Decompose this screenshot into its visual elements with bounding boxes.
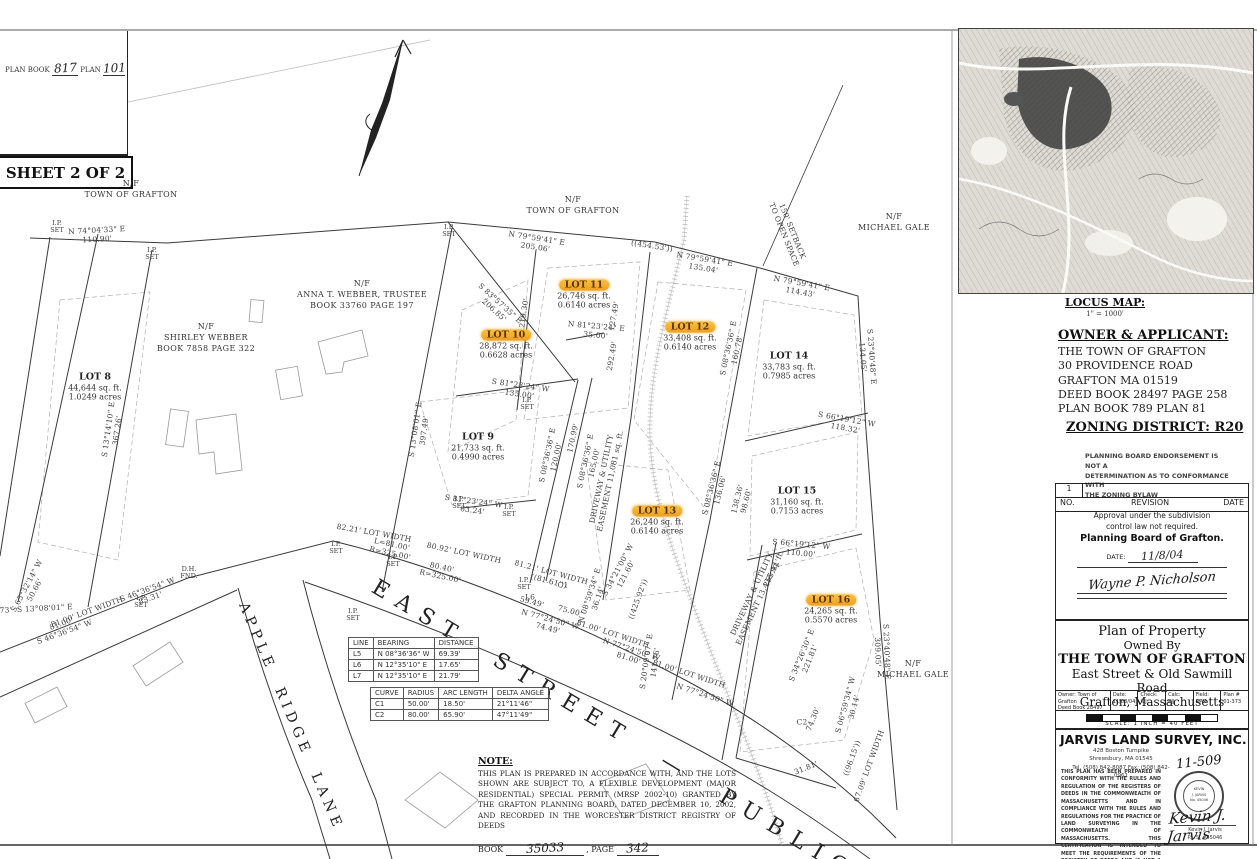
survey-plan-sheet: PLAN BOOK 817 PLAN 101 SHEET 2 OF 2 EAST…: [0, 0, 1257, 859]
abutter-label: N/F TOWN OF GRAFTON: [527, 195, 620, 217]
table-header: BEARING: [373, 638, 434, 649]
lot-label: LOT 921,733 sq. ft.0.4990 acres: [451, 425, 505, 462]
title-info-text: Field: RPM: [1196, 692, 1219, 705]
table-cell: 69.39': [434, 649, 478, 660]
lot-label: LOT 844,644 sq. ft.1.0249 acres: [68, 365, 122, 402]
monument-marker: D.H. FND.: [180, 566, 197, 580]
note-block: NOTE: THIS PLAN IS PREPARED IN ACCORDANC…: [478, 756, 736, 856]
lot-number: LOT 9: [456, 432, 500, 443]
monument-marker: I.P. SET: [145, 247, 159, 261]
lot-area-sqft: 26,746 sq. ft.: [557, 292, 611, 301]
table-header: DELTA ANGLE: [492, 688, 548, 699]
owner-applicant-block: OWNER & APPLICANT: THE TOWN OF GRAFTON 3…: [1058, 328, 1229, 416]
surveyor-signer-title: P.L.S. #45046: [1174, 835, 1236, 843]
lot-area-acres: 0.7985 acres: [762, 372, 816, 381]
monument-marker: I.P. SET: [502, 504, 516, 518]
lot-area-sqft: 33,783 sq. ft.: [762, 363, 816, 372]
monument-marker: I.P. SET: [329, 541, 343, 555]
monument-marker: I.P. SET: [517, 577, 531, 591]
table-cell: N 08°36'36" W: [373, 649, 434, 660]
title-info-cell: Owner: Town of Grafton Deed Book 28497 P…: [1056, 691, 1111, 710]
lot-label: LOT 1624,265 sq. ft.0.5570 acres: [804, 588, 858, 625]
lot-area-acres: 0.6140 acres: [630, 527, 684, 536]
title-block: Plan of Property Owned By THE TOWN OF GR…: [1055, 619, 1249, 730]
monument-marker: I.P. SET: [50, 220, 64, 234]
zoning-district: ZONING DISTRICT: R20: [1066, 420, 1243, 435]
monument-marker: I.P. SET: [520, 397, 534, 411]
plan-book-box: PLAN BOOK 817 PLAN 101: [0, 31, 128, 156]
locus-map-scale: 1" = 1000': [1040, 310, 1170, 318]
abutter-label: N/F MICHAEL GALE: [877, 659, 949, 681]
table-cell: C2: [371, 710, 404, 721]
note-book-page: BOOK 35033 , PAGE 342: [478, 841, 736, 856]
title-info-text: Check: KJJ: [1140, 692, 1163, 705]
table-row: L7N 12°35'10" E21.79': [349, 671, 479, 682]
revision-col-no: NO.: [1060, 498, 1075, 507]
approval-line-1: Approval under the subdivision: [1056, 511, 1248, 522]
dimension-label: C1: [558, 580, 569, 589]
title-info-text: Date: 11/08/04: [1113, 692, 1136, 705]
title-info-cell: Plan # 01-373: [1221, 691, 1248, 710]
lot-area-acres: 1.0249 acres: [68, 393, 122, 402]
plan-value: 101: [103, 60, 127, 75]
table-header: DISTANCE: [434, 638, 478, 649]
surveyor-name: JARVIS LAND SURVEY, INC.: [1060, 732, 1248, 747]
title-line-2: Owned By: [1056, 639, 1248, 652]
title-line-1: Plan of Property: [1056, 624, 1248, 639]
lot-number: LOT 16: [806, 595, 857, 606]
title-info-cell: Date: 11/08/04: [1111, 691, 1139, 710]
page-label: , PAGE: [586, 845, 614, 854]
lot-area-sqft: 33,408 sq. ft.: [663, 334, 717, 343]
title-info-cell: Check: KJJ: [1138, 691, 1166, 710]
abutter-label: N/F SHIRLEY WEBBER BOOK 7858 PAGE 322: [157, 322, 255, 354]
abutter-label: N/F ANNA T. WEBBER, TRUSTEE BOOK 33760 P…: [297, 279, 427, 311]
lot-label: LOT 1126,746 sq. ft.0.6140 acres: [557, 273, 611, 310]
lot-number: LOT 8: [73, 372, 117, 383]
lot-area-acres: 0.5570 acres: [804, 616, 858, 625]
monument-marker: I.P. SET: [442, 224, 456, 238]
table-row: C280.00'65.90'47°11'49": [371, 710, 549, 721]
line-table: LINEBEARINGDISTANCEL5N 08°36'36" W69.39'…: [348, 637, 479, 682]
table-cell: 18.50': [439, 699, 493, 710]
curve-table: CURVERADIUSARC LENGTHDELTA ANGLEC150.00'…: [370, 687, 549, 721]
table-cell: 50.00': [403, 699, 438, 710]
monument-marker: I.P. SET: [346, 608, 360, 622]
table-cell: 47°11'49": [492, 710, 548, 721]
lot-label: LOT 1433,783 sq. ft.0.7985 acres: [762, 344, 816, 381]
abutter-label: N/F TOWN OF GRAFTON: [85, 179, 178, 201]
owner-lines: THE TOWN OF GRAFTON 30 PROVIDENCE ROAD G…: [1058, 345, 1229, 416]
table-header: CURVE: [371, 688, 404, 699]
north-arrow-icon: [359, 40, 411, 176]
lot-label: LOT 1028,872 sq. ft.0.6628 acres: [479, 323, 533, 360]
lot-label: LOT 1233,408 sq. ft.0.6140 acres: [663, 315, 717, 352]
note-body: THIS PLAN IS PREPARED IN ACCORDANCE WITH…: [478, 769, 736, 832]
table-header: LINE: [349, 638, 374, 649]
dimension-label: N 74°04'33" E 110.90': [68, 224, 126, 246]
table-header: RADIUS: [403, 688, 438, 699]
table-row: L5N 08°36'36" W69.39': [349, 649, 479, 660]
table-cell: L7: [349, 671, 374, 682]
book-value: 35033: [525, 840, 564, 856]
scale-caption: SCALE: 1 INCH = 40 FEET: [1056, 721, 1248, 727]
lot-number: LOT 10: [481, 330, 532, 341]
dimension-label: L6: [525, 592, 535, 601]
dimension-label: S 23°40'48" E 134.05': [856, 328, 879, 385]
table-cell: 65.90': [439, 710, 493, 721]
title-info-text: Owner: Town of Grafton Deed Book 28497 P…: [1058, 692, 1108, 710]
lot-label: LOT 1326,240 sq. ft.0.6140 acres: [630, 499, 684, 536]
title-info-cell: Field: RPM: [1194, 691, 1222, 710]
revision-row1-number: 1: [1056, 484, 1083, 497]
approval-line-2: control law not required.: [1056, 522, 1248, 533]
plan-label: PLAN: [80, 66, 101, 74]
planning-board-signature: Wayne P. Nicholson: [1087, 569, 1216, 593]
table-cell: C1: [371, 699, 404, 710]
title-info-cell: Calc: KJJ: [1166, 691, 1194, 710]
surveyor-block: JARVIS LAND SURVEY, INC. 428 Boston Turn…: [1055, 728, 1249, 844]
lot-area-sqft: 24,265 sq. ft.: [804, 607, 858, 616]
locus-map: [958, 28, 1254, 294]
lot-area-sqft: 31,160 sq. ft.: [770, 498, 824, 507]
lot-area-sqft: 28,872 sq. ft.: [479, 342, 533, 351]
table-cell: 21°11'46": [492, 699, 548, 710]
revision-block: 1 NO. REVISION DATE Approval under the s…: [1055, 483, 1249, 621]
revision-col-revision: REVISION: [1131, 498, 1169, 507]
lot-number: LOT 13: [632, 506, 683, 517]
lot-area-acres: 0.6628 acres: [479, 351, 533, 360]
lot-number: LOT 15: [772, 486, 823, 497]
page-value: 342: [626, 840, 650, 855]
table-cell: N 12°35'10" E: [373, 671, 434, 682]
lot-label: LOT 1531,160 sq. ft.0.7153 acres: [770, 479, 824, 516]
table-cell: L6: [349, 660, 374, 671]
revision-col-date: DATE: [1223, 498, 1244, 507]
lot-area-sqft: 21,733 sq. ft.: [451, 444, 505, 453]
lot-area-acres: 0.4990 acres: [451, 453, 505, 462]
table-cell: 21.79': [434, 671, 478, 682]
abutter-label: N/F MICHAEL GALE: [858, 212, 930, 234]
lot-area-acres: 0.7153 acres: [770, 507, 824, 516]
title-info-text: Calc: KJJ: [1168, 692, 1191, 705]
monument-marker: I.P. SET: [134, 595, 148, 609]
surveyor-signer-name: Kevin J. Jarvis: [1174, 827, 1236, 835]
lot-number: LOT 14: [764, 351, 815, 362]
lot-number: LOT 11: [559, 280, 610, 291]
table-header: ARC LENGTH: [439, 688, 493, 699]
plan-book-label: PLAN BOOK: [5, 66, 50, 74]
dimension-label: C2: [797, 717, 808, 726]
locus-map-title: LOCUS MAP:: [1040, 296, 1170, 309]
lot-area-acres: 0.6140 acres: [557, 301, 611, 310]
table-row: C150.00'18.50'21°11'46": [371, 699, 549, 710]
monument-marker: I.P. SET: [452, 496, 466, 510]
surveyor-certification: THIS PLAN HAS BEEN PREPARED IN CONFORMIT…: [1061, 769, 1161, 859]
plan-book-value: 817: [53, 60, 77, 75]
monument-marker: I.P. SET: [386, 554, 400, 568]
lot-area-sqft: 26,240 sq. ft.: [630, 518, 684, 527]
table-cell: L5: [349, 649, 374, 660]
lot-area-acres: 0.6140 acres: [663, 343, 717, 352]
title-info-text: Plan # 01-373: [1223, 692, 1246, 705]
approval-line-3: Planning Board of Grafton.: [1056, 533, 1248, 544]
table-cell: 80.00': [403, 710, 438, 721]
title-block-info-row: Owner: Town of Grafton Deed Book 28497 P…: [1056, 690, 1248, 711]
note-title: NOTE:: [478, 756, 736, 767]
table-cell: N 12°35'10" E: [373, 660, 434, 671]
table-row: L6N 12°35'10" E17.65': [349, 660, 479, 671]
lot-number: LOT 12: [665, 322, 716, 333]
book-label: BOOK: [478, 845, 503, 854]
job-number: 11-509: [1175, 753, 1222, 773]
approval-date-value: 11/8/04: [1141, 548, 1184, 563]
approval-date-label: DATE:: [1106, 553, 1125, 561]
locus-map-caption: LOCUS MAP: 1" = 1000': [1040, 296, 1170, 318]
lot-area-sqft: 44,644 sq. ft.: [68, 384, 122, 393]
title-line-3: THE TOWN OF GRAFTON: [1056, 652, 1248, 667]
table-cell: 17.65': [434, 660, 478, 671]
owner-title: OWNER & APPLICANT:: [1058, 328, 1229, 343]
